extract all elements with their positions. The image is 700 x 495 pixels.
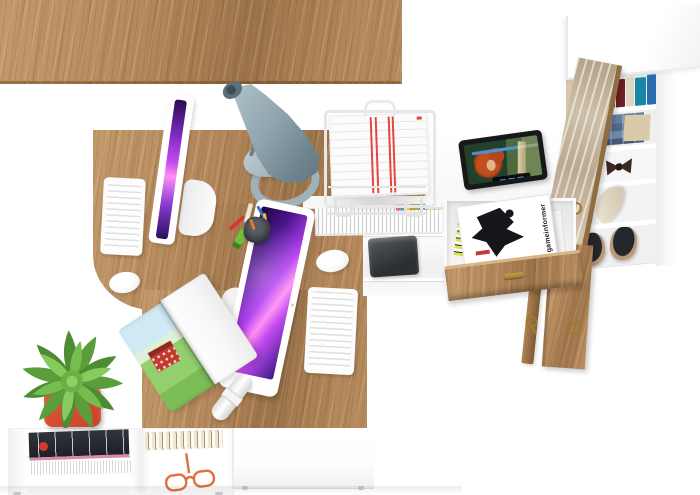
tray-handle — [364, 100, 396, 116]
book-spine — [626, 77, 635, 107]
tablet-screen — [464, 135, 543, 185]
tray-wire-bar — [328, 186, 426, 188]
bottom-drawer-cabinet — [232, 430, 374, 489]
keyboard-2 — [304, 287, 358, 375]
desk-lamp — [222, 82, 338, 204]
keyboard-keys — [308, 291, 354, 371]
printer — [368, 235, 420, 277]
succulent-plant — [16, 326, 128, 428]
tray-base-bar — [326, 212, 428, 215]
magazine-cover-art — [460, 199, 539, 262]
wardrobe-side-panel — [656, 66, 700, 266]
pencil-cup-body — [242, 215, 272, 245]
keyboard-1 — [100, 177, 146, 256]
monitor-1-stand — [177, 178, 218, 238]
paper-stack — [29, 460, 131, 475]
book-spine — [635, 77, 645, 106]
keyboard-keys — [104, 181, 142, 252]
lamp-cone-shade — [228, 84, 324, 184]
drawer-handle — [504, 272, 524, 279]
shelf-side-panel — [9, 429, 27, 493]
tray-wire-frame — [324, 110, 436, 208]
door-handle — [567, 319, 583, 337]
sneaker — [609, 227, 639, 260]
monitor-2-camera-dot — [291, 303, 295, 307]
floor-shadow — [0, 486, 462, 495]
folded-cloth — [623, 114, 650, 141]
hutch-shelf-edge — [363, 278, 445, 282]
pencil-cup — [233, 203, 277, 255]
magazine-logo-dot — [39, 442, 48, 451]
side-shelf-wood — [0, 0, 402, 84]
bow-knot — [616, 163, 622, 171]
book-spine — [647, 74, 656, 105]
open-magazine-drawer: gameinformer — [444, 196, 584, 298]
magazine-photo-house — [148, 341, 181, 373]
office-workstation-scene: gameinformer — [0, 0, 700, 495]
bottom-shelf-unit — [8, 428, 234, 495]
